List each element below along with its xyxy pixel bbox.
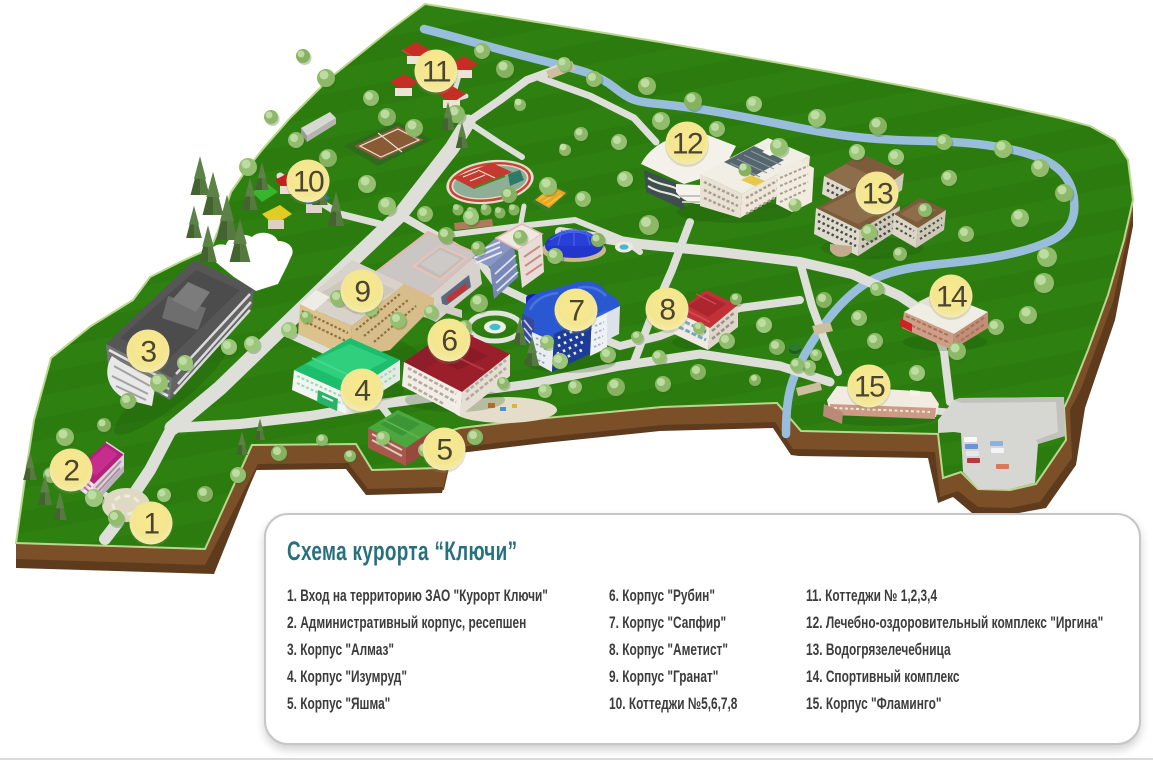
svg-text:10: 10 xyxy=(293,166,324,199)
svg-text:4: 4 xyxy=(354,375,370,408)
svg-text:6: 6 xyxy=(441,325,457,358)
svg-text:5: 5 xyxy=(436,434,452,467)
svg-text:15: 15 xyxy=(854,371,885,404)
svg-text:12: 12 xyxy=(672,128,703,161)
svg-text:13: 13 xyxy=(862,178,893,211)
svg-text:7: 7 xyxy=(568,295,584,328)
svg-text:11: 11 xyxy=(422,56,451,89)
svg-text:2: 2 xyxy=(63,455,79,488)
svg-text:14: 14 xyxy=(936,281,967,314)
svg-text:8: 8 xyxy=(659,294,675,327)
svg-text:1: 1 xyxy=(143,508,159,541)
svg-text:3: 3 xyxy=(140,336,156,369)
svg-text:9: 9 xyxy=(354,276,370,309)
